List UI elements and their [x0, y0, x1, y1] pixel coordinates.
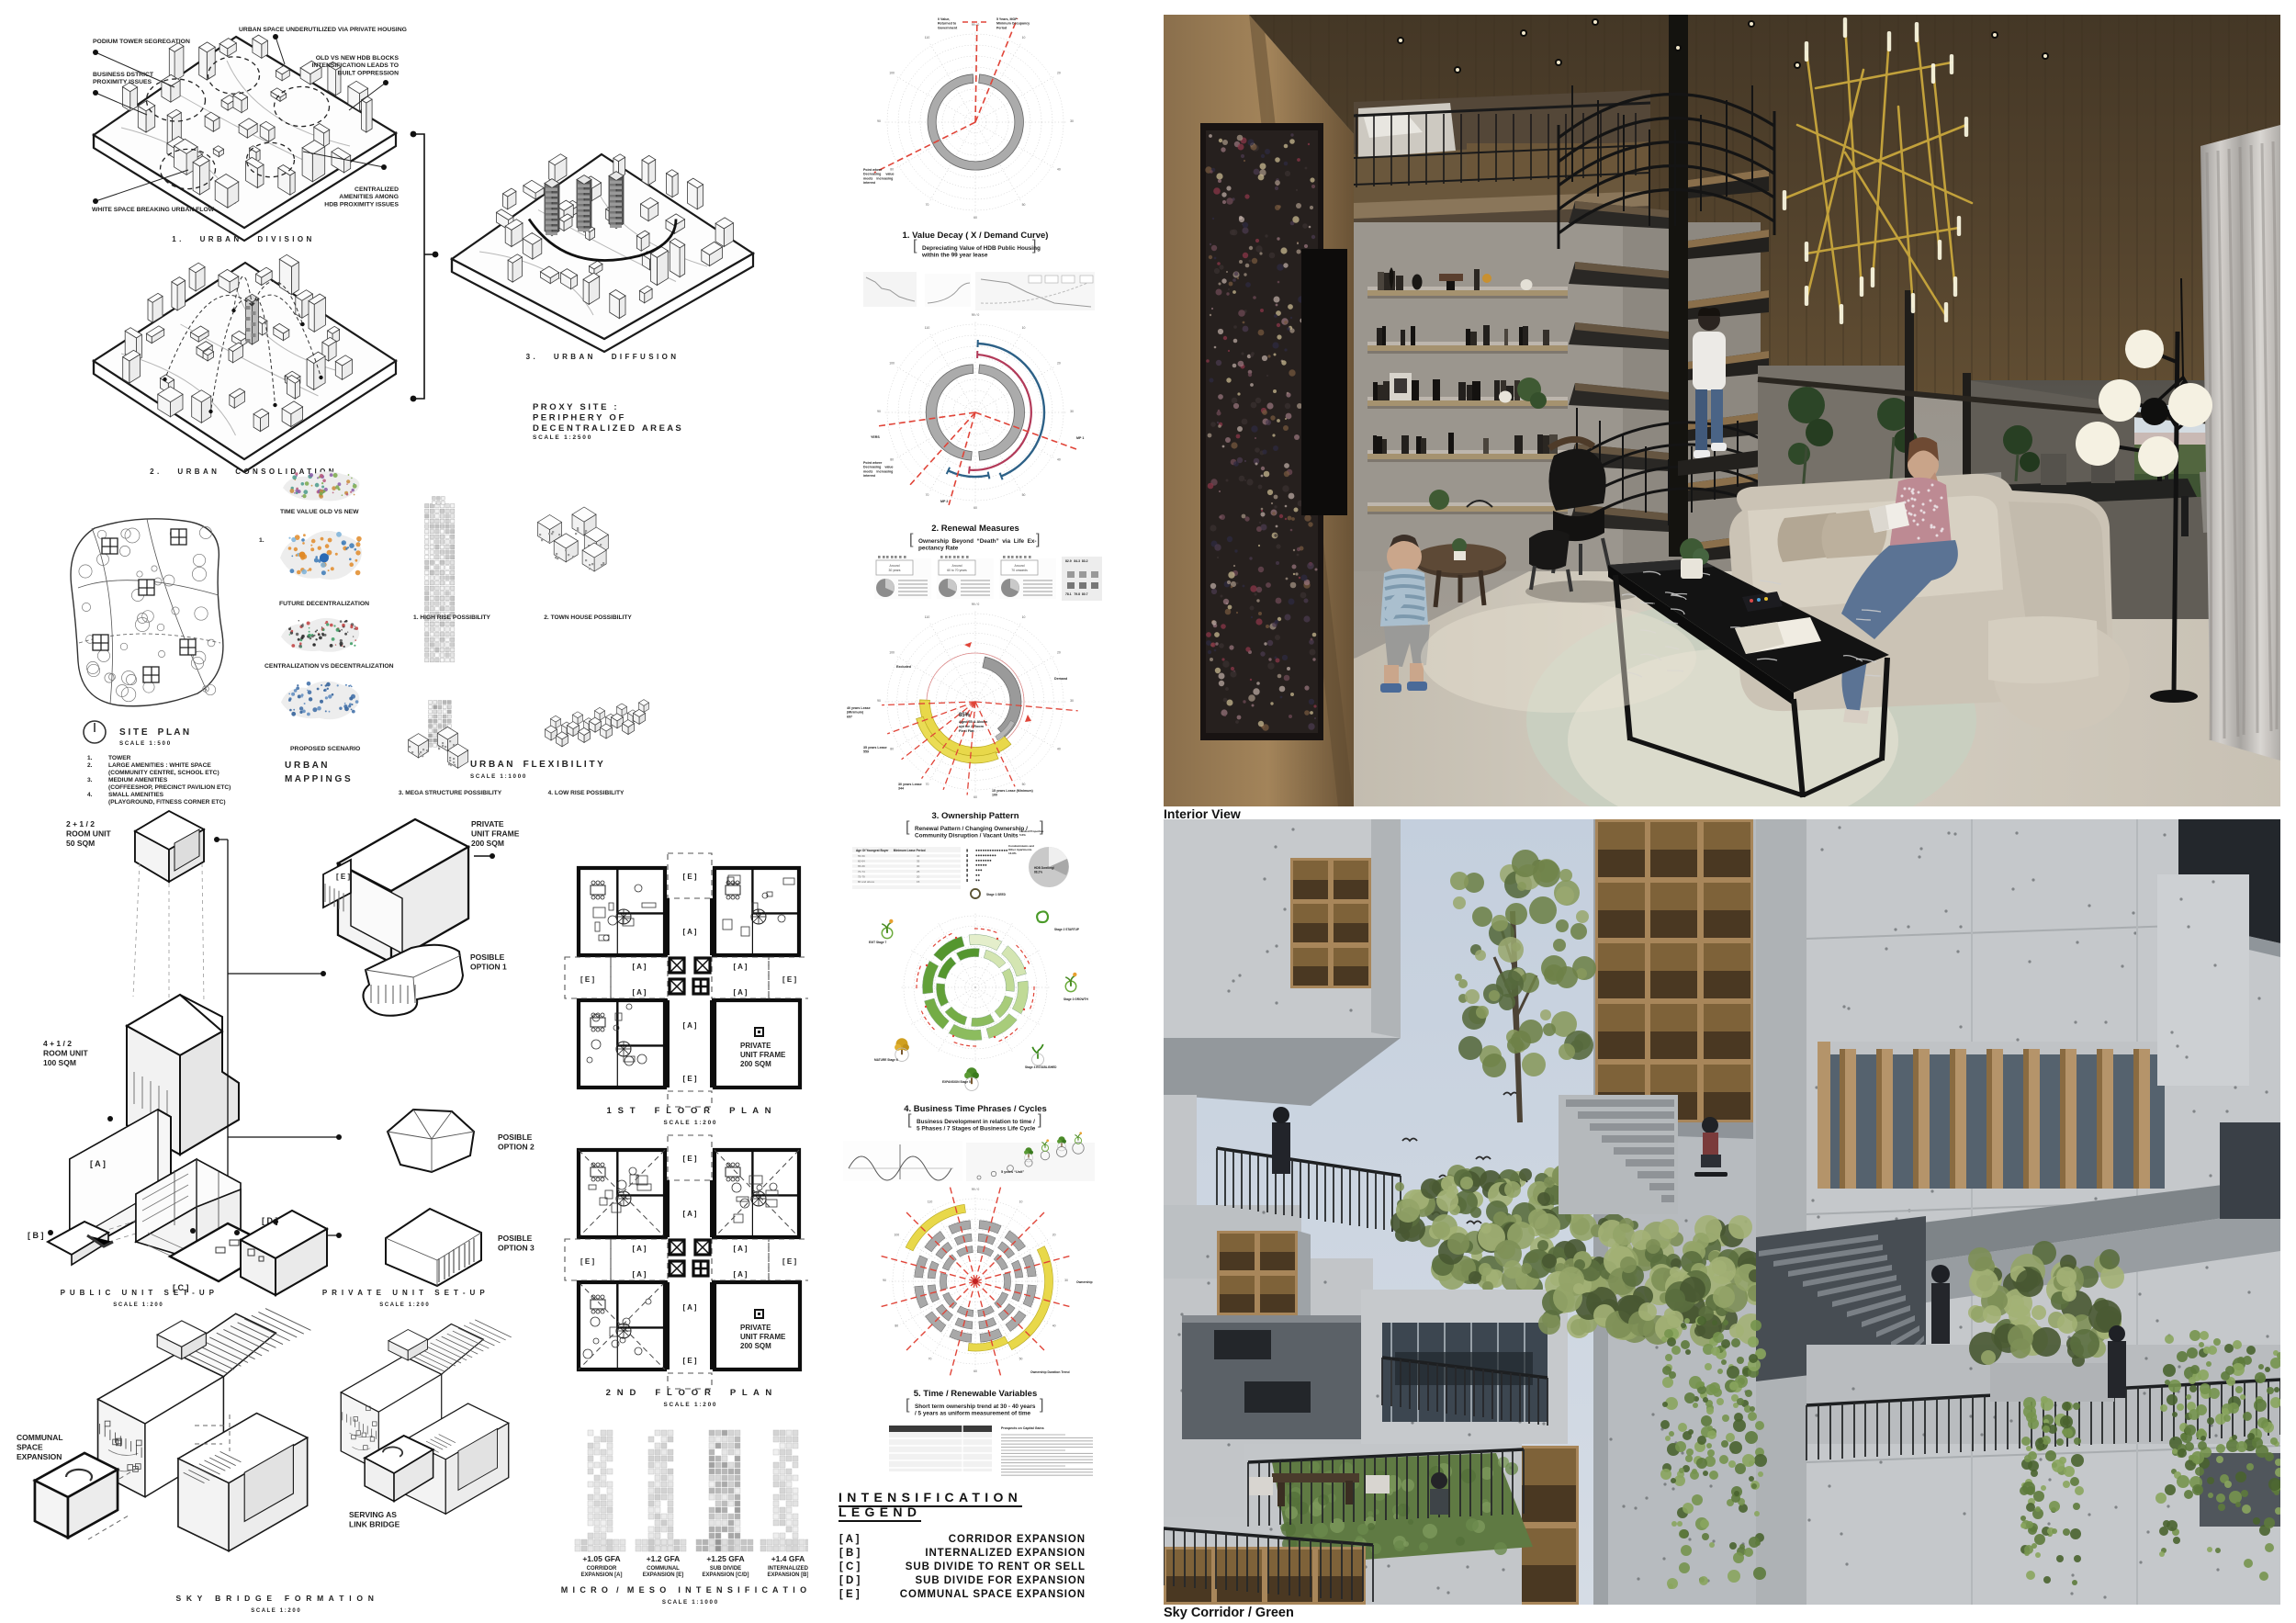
svg-text:110: 110 [925, 326, 930, 330]
svg-text:4. LOW RISE POSSIBILITY: 4. LOW RISE POSSIBILITY [548, 790, 625, 796]
svg-text:Renewal Pattern / Changing Own: Renewal Pattern / Changing Ownership / [915, 826, 1028, 832]
svg-text:Period: Period [996, 26, 1007, 29]
svg-text:50: 50 [1022, 493, 1026, 497]
svg-text:Ownership: Ownership [1076, 1280, 1093, 1284]
svg-text:▮: ▮ [966, 873, 968, 877]
svg-text:80: 80 [890, 458, 894, 462]
svg-text:Returned to: Returned to [938, 22, 957, 26]
svg-text:2. URBAN CONSOLIDATION: 2. URBAN CONSOLIDATION [150, 468, 337, 476]
svg-text:5 Years, MOP: 5 Years, MOP [996, 17, 1018, 21]
svg-text:80: 80 [895, 1324, 898, 1328]
svg-text:EXIT Stage 7: EXIT Stage 7 [869, 941, 887, 944]
svg-text:99 / 0: 99 / 0 [972, 313, 980, 317]
svg-text:1.: 1. [259, 537, 264, 544]
svg-text:5 years “Unit”: 5 years “Unit” [1001, 1170, 1024, 1174]
svg-text:Ownership Duration Trend: Ownership Duration Trend [1030, 1370, 1070, 1374]
svg-text:60: 60 [974, 216, 977, 220]
svg-text:●●: ●● [975, 873, 981, 877]
svg-text:99 / 0: 99 / 0 [972, 23, 980, 27]
svg-text:Flexi Flat: Flexi Flat [959, 729, 974, 733]
svg-text:10: 10 [1022, 615, 1026, 619]
svg-text:P U B L I C U N I T S E T: P U B L I C U N I T S E T - U P [61, 1289, 216, 1297]
svg-text:[: [ [913, 238, 917, 254]
svg-text:2. TOWN HOUSE POSSIBILITY: 2. TOWN HOUSE POSSIBILITY [544, 614, 632, 621]
svg-text:Minimum Occupancy: Minimum Occupancy [996, 22, 1030, 26]
svg-text:(PLAYGROUND, FITNESS CORNER ET: (PLAYGROUND, FITNESS CORNER ETC) [108, 799, 226, 806]
svg-text:D E C E N T R A L I Z E D A: D E C E N T R A L I Z E D A R E A S [533, 423, 681, 434]
svg-text:LARGE AMENITIES : WHITE SPACE: LARGE AMENITIES : WHITE SPACE [108, 762, 211, 769]
svg-text:●●: ●● [975, 877, 981, 882]
svg-text:78.1 79.8 80.7: 78.1 79.8 80.7 [1065, 592, 1088, 596]
svg-text:PROPOSED SCENARIO: PROPOSED SCENARIO [290, 746, 360, 752]
svg-text:Point where: Point where [863, 461, 882, 465]
svg-text:110: 110 [925, 615, 930, 619]
svg-text:40 years Lease: 40 years Lease [847, 706, 871, 710]
svg-text:Decreasing value: Decreasing value [863, 466, 894, 469]
svg-text:4. Business Time Phrases / Cyc: 4. Business Time Phrases / Cycles [904, 1104, 1047, 1114]
svg-text:●●●●●●●: ●●●●●●● [975, 858, 992, 862]
svg-text:[ A ]: [ A ] [90, 1159, 106, 1168]
svg-text:POSIBLE: POSIBLE [498, 1133, 533, 1142]
svg-text:40: 40 [1052, 1324, 1056, 1328]
svg-text:70-74: 70-74 [858, 870, 865, 873]
svg-text:S C A L E 1 : 2 0 0: S C A L E 1 : 2 0 0 [664, 1120, 716, 1126]
svg-text:[ A ]: [ A ] [633, 988, 647, 997]
svg-text:▮: ▮ [966, 848, 968, 852]
svg-text:100 SQM: 100 SQM [43, 1058, 76, 1067]
svg-text:S K Y B R I D G E F O R M: S K Y B R I D G E F O R M A T I O N [175, 1594, 375, 1603]
svg-text:2.: 2. [87, 762, 93, 769]
svg-text:EXPANSION Stage 5: EXPANSION Stage 5 [942, 1080, 971, 1084]
svg-text:LINK BRIDGE: LINK BRIDGE [349, 1520, 400, 1529]
svg-text:344: 344 [898, 787, 904, 791]
svg-text:S C A L E 1 : 5 0 0: S C A L E 1 : 5 0 0 [119, 740, 171, 747]
svg-text:●●●: ●●● [975, 868, 983, 873]
svg-text:30: 30 [1064, 1279, 1068, 1282]
svg-text:20: 20 [917, 874, 920, 878]
svg-text:]: ] [1038, 1112, 1041, 1128]
svg-text:10: 10 [1022, 326, 1026, 330]
svg-text:200 SQM: 200 SQM [740, 1060, 771, 1068]
svg-text:U R B A N: U R B A N [285, 761, 327, 771]
svg-text:1 S T F L O O R P L A N: 1 S T F L O O R P L A N [606, 1106, 772, 1116]
svg-text:●●●●●●●●●: ●●●●●●●●● [975, 852, 996, 857]
svg-text:10: 10 [1022, 36, 1026, 39]
svg-text:S C A L E 1 : 2 0 0: S C A L E 1 : 2 0 0 [379, 1302, 429, 1308]
svg-text:S C A L E 1 : 2 0 0: S C A L E 1 : 2 0 0 [113, 1302, 163, 1308]
svg-text:TOWER: TOWER [108, 755, 131, 761]
svg-text:P R O X Y S I T E :: P R O X Y S I T E : [533, 402, 617, 412]
svg-text:65-69: 65-69 [858, 864, 865, 868]
svg-text:]: ] [1036, 532, 1040, 547]
svg-text:4.: 4. [87, 792, 93, 798]
svg-text:3. MEGA STRUCTURE POSSIBILITY: 3. MEGA STRUCTURE POSSIBILITY [399, 790, 502, 796]
svg-text:40: 40 [1057, 458, 1061, 462]
svg-text:90: 90 [883, 1279, 886, 1282]
svg-text:meets increasing: meets increasing [863, 176, 893, 180]
svg-text:40: 40 [1057, 168, 1061, 172]
svg-text:Demand: Demand [1054, 677, 1067, 681]
svg-text:OPTION 2: OPTION 2 [498, 1143, 535, 1152]
svg-text:UNIT FRAME: UNIT FRAME [471, 829, 520, 839]
svg-text:559: 559 [863, 750, 869, 754]
svg-text:S I T E P L A N: S I T E P L A N [119, 727, 189, 738]
svg-text:70: 70 [926, 203, 929, 207]
svg-text:M A P P I N G S: M A P P I N G S [285, 774, 351, 784]
svg-text:OLD VS NEW HDB BLOCKS: OLD VS NEW HDB BLOCKS [316, 55, 400, 62]
svg-text:BUILT OPPRESSION: BUILT OPPRESSION [338, 70, 399, 76]
svg-text:EXPANSION: EXPANSION [17, 1452, 62, 1461]
svg-text:50 SQM: 50 SQM [66, 839, 95, 848]
svg-text:200 SQM: 200 SQM [471, 839, 504, 848]
svg-text:50: 50 [1022, 203, 1026, 207]
svg-text:BUSINESS DSTRICT: BUSINESS DSTRICT [93, 72, 154, 78]
svg-text:(Minimum): (Minimum) [847, 711, 864, 715]
svg-text:ROOM UNIT: ROOM UNIT [43, 1049, 88, 1058]
svg-text:FUTURE DECENTRALIZATION: FUTURE DECENTRALIZATION [279, 601, 369, 607]
svg-text:35: 35 [917, 860, 920, 863]
svg-text:[ B ]: [ B ] [28, 1231, 44, 1240]
svg-text:Point where: Point where [863, 168, 882, 172]
svg-text:10: 10 [1019, 1200, 1023, 1203]
svg-text:SPACE: SPACE [17, 1443, 43, 1452]
svg-text:MP 2: MP 2 [940, 500, 948, 503]
svg-text:MP 1: MP 1 [1076, 436, 1084, 440]
svg-text:Community Disruption / Vacant: Community Disruption / Vacant Units [915, 833, 1019, 840]
svg-text:MEDIUM AMENITIES: MEDIUM AMENITIES [108, 777, 168, 783]
svg-text:Decreasing value: Decreasing value [863, 173, 895, 176]
svg-text:Ownership Beyond “Death” vi: Ownership Beyond “Death” via Life Ex- [918, 538, 1037, 545]
svg-text:55-59: 55-59 [858, 854, 865, 858]
svg-text:50: 50 [1019, 1358, 1023, 1361]
svg-text:(COMMUNITY CENTRE, SCHOOL ETC): (COMMUNITY CENTRE, SCHOOL ETC) [108, 770, 219, 776]
svg-text:100: 100 [894, 1234, 899, 1237]
svg-text:Stage 2 STARTUP: Stage 2 STARTUP [1054, 928, 1080, 931]
svg-text:[: [ [906, 819, 910, 835]
svg-text:within the 99 year lease: within the 99 year lease [921, 253, 988, 259]
svg-text:35 years Lease: 35 years Lease [863, 746, 887, 750]
svg-text:▮: ▮ [966, 868, 968, 873]
svg-text:99 / 0: 99 / 0 [972, 603, 980, 606]
svg-text:25: 25 [917, 870, 920, 873]
svg-text:URBAN SPACE UNDERUTILIZED VIA: URBAN SPACE UNDERUTILIZED VIA PRIVATE HO… [239, 27, 407, 33]
svg-text:[ A ]: [ A ] [633, 963, 647, 971]
svg-text:3.: 3. [87, 777, 93, 783]
svg-text:S C A L E 1 : 2 0 0: S C A L E 1 : 2 0 0 [251, 1608, 300, 1614]
svg-text:90: 90 [877, 410, 881, 413]
svg-text:99 / 0: 99 / 0 [972, 1188, 980, 1191]
svg-text:697: 697 [847, 715, 852, 718]
svg-text:[ A ]: [ A ] [734, 963, 748, 971]
svg-text:/ 5 years as uniform measureme: / 5 years as uniform measurement of time [915, 1411, 1031, 1417]
svg-text:Depreciating Value of HDB Publ: Depreciating Value of HDB Public Housing [922, 245, 1041, 252]
svg-text:60: 60 [974, 1369, 977, 1373]
svg-text:50: 50 [1022, 783, 1026, 786]
svg-text:●●●●●●●●●●●●●●: ●●●●●●●●●●●●●● [975, 848, 1008, 852]
svg-text:4 + 1 / 2: 4 + 1 / 2 [43, 1039, 72, 1048]
svg-text:90: 90 [877, 119, 881, 123]
svg-text:[ E ]: [ E ] [682, 873, 696, 881]
svg-text:pectancy Rate: pectancy Rate [918, 546, 959, 552]
svg-text:▮: ▮ [966, 858, 968, 862]
svg-text:30 years Lease: 30 years Lease [898, 783, 922, 786]
svg-text:20: 20 [1052, 1234, 1056, 1237]
svg-text:S C A L E 1 : 1 0 0 0: S C A L E 1 : 1 0 0 0 [470, 773, 526, 780]
svg-text:40: 40 [917, 854, 920, 858]
svg-text:20: 20 [1057, 651, 1061, 655]
svg-text:Aged 55 & Above: Aged 55 & Above [959, 720, 987, 724]
svg-text:[: [ [907, 1112, 912, 1128]
svg-text:CENTRALIZED: CENTRALIZED [355, 186, 399, 193]
svg-text:100: 100 [889, 362, 895, 366]
svg-text:5 Phases / 7 Stages of Busines: 5 Phases / 7 Stages of Business Life Cyc… [917, 1126, 1036, 1133]
svg-text:70: 70 [929, 1358, 932, 1361]
svg-text:1.: 1. [87, 755, 93, 761]
svg-text:INTENSIFICATION LEADS TO: INTENSIFICATION LEADS TO [311, 62, 399, 69]
svg-text:80 and above: 80 and above [858, 880, 875, 884]
svg-text:meets increasing: meets increasing [863, 469, 893, 473]
svg-text:P E R I P H E R Y O F: P E R I P H E R Y O F [533, 413, 624, 423]
svg-text:20: 20 [1057, 362, 1061, 366]
svg-text:20: 20 [1057, 72, 1061, 75]
svg-text:●●●●●: ●●●●● [975, 862, 987, 867]
svg-text:(COFFEESHOP, PRECINCT PAVILION: (COFFEESHOP, PRECINCT PAVILION ETC) [108, 784, 231, 791]
svg-text:PRIVATE: PRIVATE [471, 819, 504, 828]
svg-text:15 years Lease (Minimum): 15 years Lease (Minimum) [992, 789, 1034, 793]
svg-text:5.6%: 5.6% [1019, 833, 1026, 837]
svg-text:85%: 85% [959, 713, 971, 718]
svg-text:[ E ]: [ E ] [682, 1075, 696, 1083]
svg-text:[: [ [909, 532, 914, 547]
svg-text:▮: ▮ [966, 862, 968, 867]
svg-text:70 onwards: 70 onwards [1011, 569, 1028, 572]
svg-text:80: 80 [890, 748, 894, 751]
svg-text:SMALL AMENITIES: SMALL AMENITIES [108, 792, 164, 798]
svg-text:Business Development in relati: Business Development in relation to time… [917, 1119, 1035, 1125]
svg-text:HDB PROXIMITY ISSUES: HDB PROXIMITY ISSUES [324, 201, 399, 208]
svg-text:Prospects on Capital Gains: Prospects on Capital Gains [1001, 1426, 1044, 1430]
svg-text:Short term ownership trend at: Short term ownership trend at 30 - 40 ye… [915, 1403, 1036, 1410]
svg-text:]: ] [1040, 1397, 1043, 1413]
svg-text:30: 30 [1070, 410, 1074, 413]
svg-text:0 Value,: 0 Value, [938, 17, 950, 21]
svg-text:60: 60 [974, 506, 977, 510]
svg-text:Around: Around [952, 564, 962, 568]
svg-text:3. Ownership Pattern: 3. Ownership Pattern [931, 811, 1019, 821]
svg-text:YERS: YERS [871, 435, 880, 439]
svg-text:110: 110 [928, 1200, 933, 1203]
svg-text:AMENITIES AMONG: AMENITIES AMONG [339, 194, 399, 200]
svg-text:2. Renewal Measures: 2. Renewal Measures [931, 524, 1019, 534]
svg-text:MATURE Stage 6: MATURE Stage 6 [874, 1058, 898, 1062]
svg-text:100: 100 [889, 651, 895, 655]
svg-text:Age Of Youngest Buyer Min: Age Of Youngest Buyer Minimum Lease Peri… [856, 849, 926, 852]
svg-text:COMMUNAL: COMMUNAL [17, 1433, 63, 1442]
svg-text:[ E ]: [ E ] [580, 975, 594, 984]
svg-text:Stage 4 ESTABLISHED: Stage 4 ESTABLISHED [1025, 1065, 1057, 1069]
svg-text:1. Value Decay ( X / Demand Cu: 1. Value Decay ( X / Demand Curve) [903, 231, 1049, 241]
svg-text:[: [ [906, 1397, 910, 1413]
svg-text:Stage 3 GROWTH: Stage 3 GROWTH [1064, 997, 1088, 1001]
svg-text:1. URBAN DIVISION: 1. URBAN DIVISION [172, 235, 314, 243]
svg-text:30: 30 [917, 864, 920, 868]
svg-text:5. Time / Renewable Variables: 5. Time / Renewable Variables [914, 1389, 1037, 1399]
svg-text:70: 70 [926, 493, 929, 497]
svg-text:75-79: 75-79 [858, 874, 865, 878]
svg-text:60 to 70 years: 60 to 70 years [947, 569, 967, 572]
svg-text:2 + 1 / 2: 2 + 1 / 2 [66, 819, 95, 828]
svg-text:80: 80 [890, 168, 894, 172]
svg-text:15: 15 [917, 880, 920, 884]
svg-text:Stage 1 SEED: Stage 1 SEED [986, 893, 1007, 896]
svg-text:[ A ]: [ A ] [734, 988, 748, 997]
svg-text:Around: Around [1015, 564, 1025, 568]
svg-text:ROOM UNIT: ROOM UNIT [66, 829, 111, 839]
svg-text:interest: interest [863, 474, 876, 478]
svg-text:PROXIMITY ISSUES: PROXIMITY ISSUES [93, 79, 152, 85]
svg-text:CENTRALIZATION VS DECENTRALIZA: CENTRALIZATION VS DECENTRALIZATION [264, 663, 394, 670]
svg-text:70: 70 [926, 783, 929, 786]
svg-text:30 years: 30 years [888, 569, 900, 572]
svg-text:opt for 2 Room: opt for 2 Room [959, 725, 985, 728]
svg-text:POSIBLE: POSIBLE [498, 1234, 533, 1243]
svg-text:U R B A N F L E X I B I L I: U R B A N F L E X I B I L I T Y [470, 760, 603, 770]
svg-text:S C A L E 1 : 2 5 0 0: S C A L E 1 : 2 5 0 0 [533, 434, 591, 441]
svg-text:30: 30 [1070, 119, 1074, 123]
svg-text:13.9%: 13.9% [1008, 851, 1017, 855]
svg-text:100: 100 [889, 72, 895, 75]
svg-text:▮: ▮ [966, 877, 968, 882]
svg-text:1. HIGH RISE POSSIBILITY: 1. HIGH RISE POSSIBILITY [413, 614, 491, 621]
svg-text:90: 90 [877, 699, 881, 703]
svg-text:Around: Around [890, 564, 900, 568]
svg-text:▮: ▮ [966, 852, 968, 857]
svg-text:TIME VALUE OLD VS NEW: TIME VALUE OLD VS NEW [280, 509, 359, 515]
svg-text:60: 60 [974, 795, 977, 799]
svg-text:[ A ]: [ A ] [683, 928, 697, 936]
svg-text:UNIT FRAME: UNIT FRAME [740, 1051, 786, 1059]
svg-text:PRIVATE: PRIVATE [740, 1042, 771, 1050]
svg-text:WHITE SPACE BREAKING URBAN FLO: WHITE SPACE BREAKING URBAN FLOW [92, 207, 215, 213]
svg-text:82.9 84.3 83.2: 82.9 84.3 83.2 [1065, 559, 1088, 563]
svg-text:110: 110 [925, 36, 930, 39]
svg-text:OPTION 1: OPTION 1 [470, 963, 507, 972]
svg-text:[ C ]: [ C ] [173, 1283, 189, 1292]
svg-text:60-64: 60-64 [858, 860, 865, 863]
svg-text:[ E ]: [ E ] [782, 975, 796, 984]
svg-text:[ A ]: [ A ] [683, 1021, 697, 1030]
svg-text:100: 100 [992, 794, 997, 797]
svg-text:88.2%: 88.2% [1034, 870, 1042, 873]
svg-text:SERVING AS: SERVING AS [349, 1510, 397, 1519]
svg-text:P R I V A T E U N I T S E: P R I V A T E U N I T S E T - U P [322, 1289, 486, 1297]
svg-text:30: 30 [1070, 699, 1074, 703]
svg-text:OPTION 3: OPTION 3 [498, 1244, 535, 1253]
svg-text:interest: interest [863, 181, 876, 185]
svg-text:40: 40 [1057, 748, 1061, 751]
svg-text:Excluded: Excluded [896, 665, 911, 669]
svg-text:PODIUM TOWER SEGREGATION: PODIUM TOWER SEGREGATION [93, 39, 190, 45]
svg-text:[ E ]: [ E ] [336, 873, 350, 881]
svg-text:POSIBLE: POSIBLE [470, 952, 505, 962]
svg-text:3. URBAN DIFFUSION: 3. URBAN DIFFUSION [526, 353, 680, 361]
svg-text:Government: Government [938, 26, 958, 29]
